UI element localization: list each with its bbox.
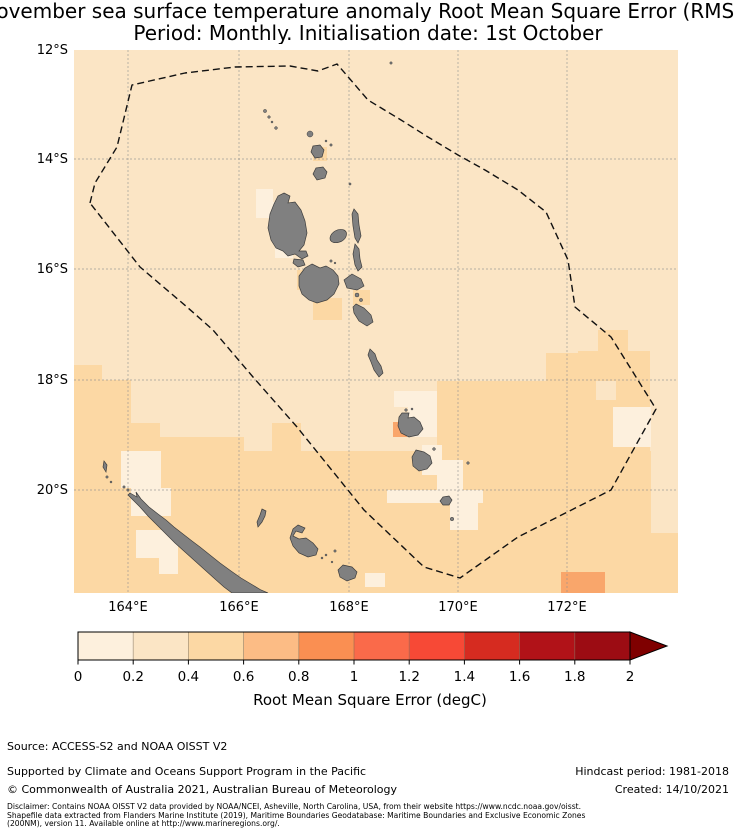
aneityum-island	[450, 517, 454, 521]
colorbar-segment	[409, 632, 464, 660]
colorbar: 0 0.2 0.4 0.6 0.8 1 1.2 1.4 1.6 1.8 2 Ro…	[74, 632, 667, 709]
colorbar-tick-label: 2	[626, 669, 635, 685]
tiga-island	[321, 557, 323, 559]
hindcast-period: Hindcast period: 1981-2018	[575, 765, 729, 778]
lat-tick-label: 16°S	[37, 262, 68, 277]
colorbar-extend-arrow	[630, 632, 667, 660]
figure: November sea surface temperature anomaly…	[0, 0, 736, 839]
lat-tick-label: 20°S	[37, 483, 68, 498]
colorbar-segment	[575, 632, 630, 660]
colorbar-segment	[299, 632, 354, 660]
source-line: Source: ACCESS-S2 and NOAA OISST V2	[7, 740, 227, 753]
colorbar-tick-label: 1	[350, 669, 359, 685]
torres-islands	[263, 109, 266, 112]
colorbar-segment	[188, 632, 243, 660]
colorbar-segment	[133, 632, 188, 660]
lat-tick-label: 14°S	[37, 152, 68, 167]
lon-tick-label: 170°E	[438, 600, 478, 615]
map-and-colorbar-canvas: 12°S 14°S 16°S 18°S 20°S 164°E 166°E 168…	[0, 0, 736, 839]
lat-tick-label: 12°S	[37, 43, 68, 58]
copyright-line: © Commonwealth of Australia 2021, Austra…	[7, 783, 397, 796]
lopevi-island	[359, 298, 362, 301]
lon-tick-label: 164°E	[108, 600, 148, 615]
colorbar-tick-label: 0.2	[122, 669, 143, 685]
lon-tick-label: 168°E	[329, 600, 369, 615]
disclaimer-line-3: (200NM), version 11. Available online at…	[7, 820, 280, 828]
colorbar-tick-label: 1.2	[398, 669, 419, 685]
futuna-island	[467, 462, 470, 465]
lat-axis: 12°S 14°S 16°S 18°S 20°S	[37, 43, 68, 498]
created-date: Created: 14/10/2021	[615, 783, 729, 796]
colorbar-tick-labels: 0 0.2 0.4 0.6 0.8 1 1.2 1.4 1.6 1.8 2	[74, 669, 635, 685]
paama-island	[355, 293, 359, 297]
ureparapara-island	[307, 131, 313, 137]
colorbar-tick-label: 1.6	[509, 669, 530, 685]
map-panel	[74, 50, 678, 593]
lon-axis: 164°E 166°E 168°E 170°E 172°E	[108, 600, 587, 615]
colorbar-tick-label: 1.8	[564, 669, 585, 685]
colorbar-segment	[244, 632, 299, 660]
colorbar-tick-label: 0.4	[178, 669, 199, 685]
supported-line: Supported by Climate and Oceans Support …	[7, 765, 366, 778]
lon-tick-label: 172°E	[547, 600, 587, 615]
colorbar-tick-label: 0	[74, 669, 83, 685]
colorbar-tick-label: 0.6	[233, 669, 254, 685]
lat-tick-label: 18°S	[37, 373, 68, 388]
colorbar-tick-label: 1.4	[454, 669, 475, 685]
colorbar-segment	[354, 632, 409, 660]
colorbar-segment	[464, 632, 519, 660]
colorbar-tick-label: 0.8	[288, 669, 309, 685]
colorbar-segment	[520, 632, 575, 660]
colorbar-segment	[78, 632, 133, 660]
colorbar-ticks	[78, 660, 630, 665]
colorbar-title: Root Mean Square Error (degC)	[253, 691, 487, 709]
lon-tick-label: 166°E	[219, 600, 259, 615]
